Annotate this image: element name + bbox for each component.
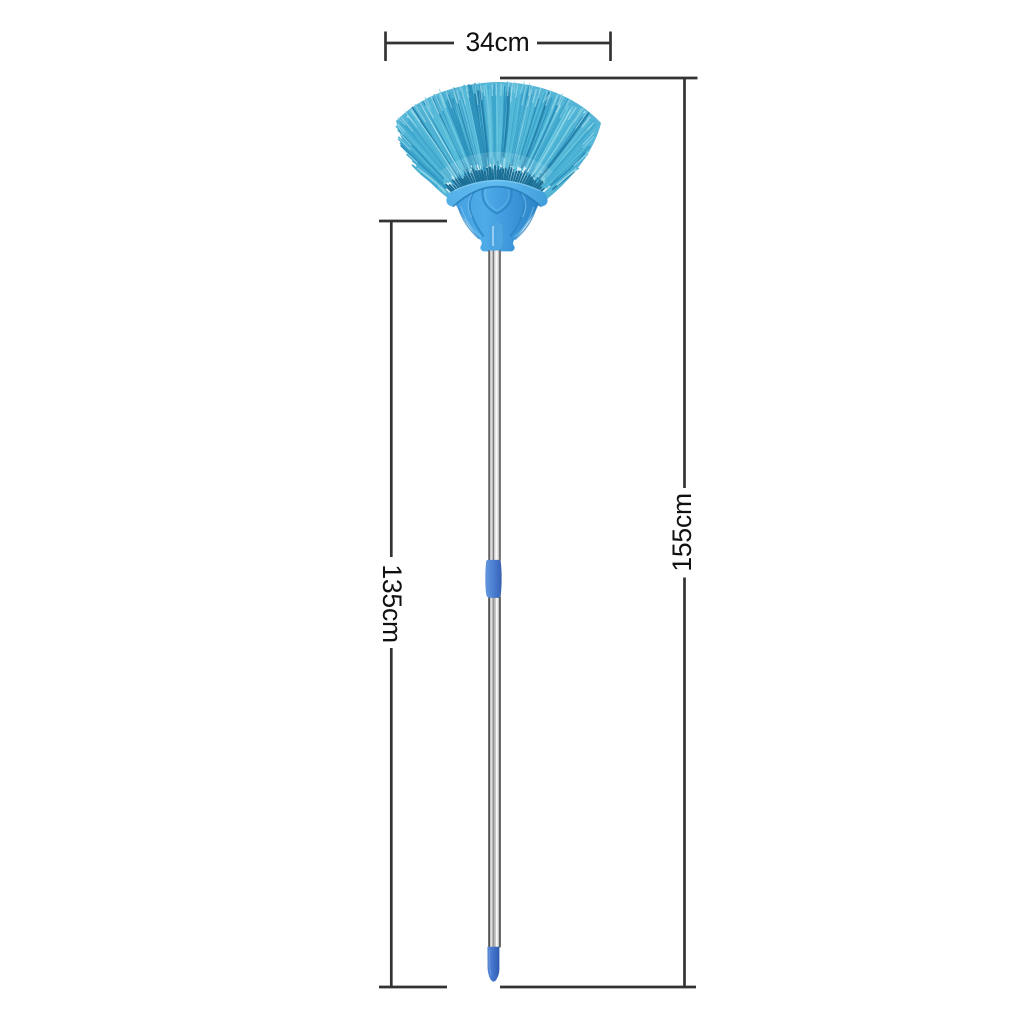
svg-text:135cm: 135cm <box>377 564 407 643</box>
svg-text:34cm: 34cm <box>465 27 529 57</box>
svg-text:155cm: 155cm <box>667 493 697 572</box>
